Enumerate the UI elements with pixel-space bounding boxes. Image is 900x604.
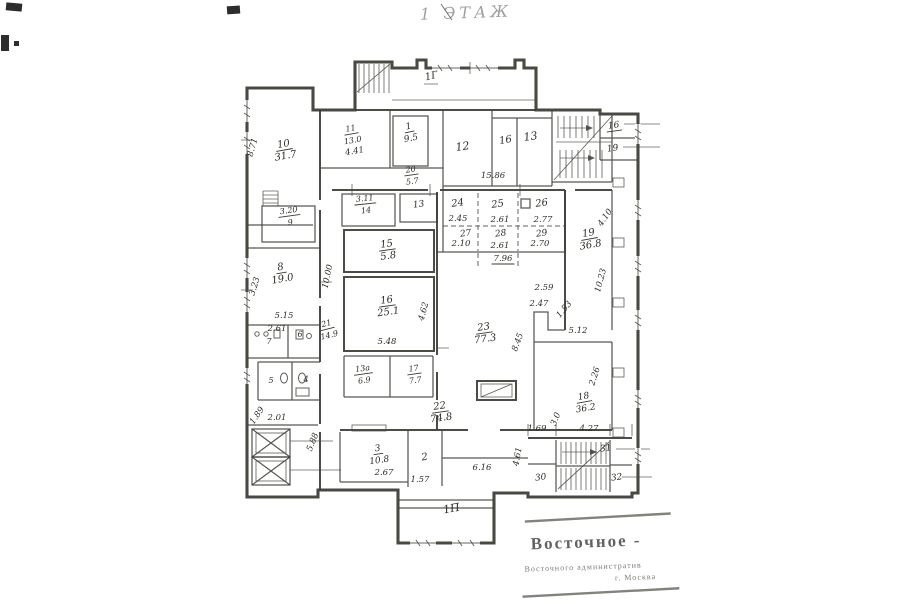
room-label: 1625.1	[374, 294, 400, 320]
label-text: 10.8	[369, 455, 391, 468]
hall-booth	[477, 381, 516, 400]
label-text: 32	[610, 472, 623, 484]
room-number-label: 28	[493, 228, 507, 240]
label-text: 7.96	[494, 254, 514, 264]
label-text: 2.01	[267, 413, 287, 423]
room-label: 3.1114	[353, 193, 377, 216]
dimension-label: 10.23	[593, 267, 609, 293]
dimension-label: 1.89	[248, 405, 267, 427]
dimension-label: 2.61	[490, 215, 510, 225]
label-text: 20	[404, 164, 416, 174]
dimension-label: 3.23	[248, 276, 263, 297]
label-text: 25.1	[376, 305, 401, 319]
label-text: 2.59	[534, 283, 555, 293]
label-text: 26	[534, 197, 550, 210]
dimension-label: 1.57	[411, 475, 431, 485]
stamp-title: Восточное -	[530, 531, 642, 554]
label-text: 31	[599, 443, 612, 454]
dimension-label: 2.59	[534, 283, 555, 293]
label-text: 8.45	[510, 332, 526, 353]
dimension-label: 3.0	[549, 411, 564, 428]
label-text: 12	[455, 139, 471, 154]
label-text: 77.3	[474, 332, 498, 346]
room-number-label: 7	[266, 337, 272, 346]
label-text: 9	[287, 218, 293, 228]
interior-walls-bottom	[340, 425, 528, 508]
label-text: 6.9	[357, 375, 371, 386]
label-text: 2.61	[490, 215, 510, 225]
dimension-label: 2.61	[267, 324, 287, 334]
room-number-label: 6	[297, 330, 302, 339]
room-number-label: 19	[606, 143, 619, 155]
plumbing-fixtures	[255, 330, 312, 396]
dimension-label: 4.27	[579, 424, 600, 434]
label-text: 5.12	[569, 326, 588, 336]
dimension-label: 1.53	[555, 299, 575, 320]
label-text: 10.23	[593, 267, 609, 293]
label-text: 21	[319, 318, 332, 329]
room-label: 310.8	[367, 443, 390, 468]
label-text: 5.48	[378, 337, 398, 347]
label-text: 2.61	[490, 241, 510, 251]
room-number-label: 16	[605, 120, 622, 132]
room-number-label: 24	[450, 197, 465, 210]
label-text: 14	[360, 205, 371, 215]
label-text: 3	[374, 444, 381, 455]
label-text: 2.26	[587, 365, 603, 388]
room-label: 1836.2	[573, 390, 597, 415]
label-text: 1.57	[411, 475, 431, 485]
label-text: 1.53	[555, 299, 575, 320]
room-number-label: 1П	[442, 501, 461, 517]
label-text: 1Г	[424, 70, 439, 84]
room-number-label: 32	[610, 472, 623, 484]
room-label: 2377.3	[472, 321, 497, 347]
room-number-label: 2	[420, 452, 429, 464]
label-text: 2.70	[530, 239, 551, 249]
label-text: 5.15	[275, 311, 294, 321]
room-label: 155.8	[378, 238, 398, 263]
label-text: 1П	[442, 501, 461, 517]
dimension-label: 2.61	[490, 241, 510, 251]
dimension-label: 6.16	[473, 463, 493, 473]
dimension-label: 5.48	[378, 337, 398, 347]
dimension-label: 2.10	[451, 239, 472, 249]
room-number-label: 5	[268, 376, 273, 385]
label-text: 16	[498, 134, 513, 147]
label-text: 2.67	[374, 468, 395, 478]
room-number-label: 12	[455, 139, 471, 154]
label-text: 3.11	[355, 193, 374, 204]
label-text: 30	[534, 472, 547, 484]
dimension-label: 7.96	[492, 254, 515, 264]
label-text: 74.8	[430, 411, 454, 425]
dimension-label: 4.62	[417, 301, 432, 323]
room-label: 13а6.9	[353, 363, 375, 386]
dimension-label: 2.26	[587, 365, 603, 388]
label-text: 8	[276, 262, 284, 274]
label-text: 5.8	[380, 250, 397, 263]
label-text: 19.0	[271, 272, 295, 287]
stamp-city: г. Москва	[615, 572, 656, 582]
label-text: 2.47	[529, 299, 550, 309]
elevator-shafts	[252, 429, 341, 485]
label-text: 4.41	[343, 145, 364, 158]
scanned-floor-plan-page: 1 ЭТАЖ	[0, 0, 900, 604]
room-number-label: 30	[534, 472, 547, 484]
room-label: 1031.7	[272, 137, 299, 164]
room-label: 1113.04.41	[339, 122, 364, 158]
label-text: 3.20	[279, 205, 298, 216]
label-text: 2.61	[267, 324, 287, 334]
room-number-label: 16	[498, 134, 513, 147]
label-text: 6.16	[473, 463, 493, 473]
dimension-label: 5.15	[275, 311, 294, 321]
dimension-label: 15.86	[481, 171, 506, 181]
dimension-label: 2.45	[448, 214, 468, 224]
label-text: 25	[490, 198, 505, 211]
room-label: 819.0	[269, 260, 296, 287]
label-text: 36.2	[575, 402, 597, 415]
room-number-label: 13	[523, 129, 539, 144]
dimension-label: 8.45	[510, 332, 526, 353]
room-number-label: 4	[302, 375, 308, 384]
label-text: 13	[523, 129, 539, 144]
label-text: 4	[302, 375, 308, 384]
label-text: 19	[606, 143, 619, 155]
label-text: 10.00	[321, 263, 336, 289]
label-text: 3.0	[549, 411, 564, 428]
label-text: 7.7	[408, 375, 423, 386]
room-number-label: 31	[599, 443, 612, 454]
room-number-label: 1Г	[424, 70, 439, 84]
label-text: 13а	[355, 363, 371, 374]
label-text: 11	[345, 123, 357, 134]
label-text: 6	[297, 330, 302, 339]
floor-title: 1 ЭТАЖ	[420, 2, 513, 24]
label-text: 5.7	[405, 176, 420, 187]
label-text: 3.23	[248, 276, 263, 297]
label-text: 2.45	[448, 214, 468, 224]
room-label: 19.5	[401, 121, 420, 146]
label-text: 2.77	[533, 215, 554, 225]
dimension-label: 2.70	[530, 239, 551, 249]
room-number-label: 25	[490, 198, 505, 211]
room-number-label: 26	[534, 197, 550, 210]
label-text: 13.0	[343, 134, 362, 146]
label-text: 17	[408, 363, 420, 373]
label-text: 15.86	[481, 171, 506, 181]
dimension-label: 1.69	[528, 424, 548, 434]
dimension-label: 2.01	[267, 413, 287, 423]
registration-stamp: Восточное - Восточного административ г. …	[520, 513, 680, 596]
dimension-label: 2.77	[533, 215, 554, 225]
label-text: 4.27	[579, 424, 600, 434]
floor-plan-drawing: 1 ЭТАЖ	[0, 0, 900, 604]
room-label: 1936.8	[577, 226, 603, 253]
dimension-label: 5.12	[569, 326, 588, 336]
dimension-label: 2.67	[374, 468, 395, 478]
stamp-subtitle: Восточного административ	[524, 561, 641, 574]
label-text: 7	[266, 337, 272, 346]
label-text: 9.5	[403, 132, 419, 145]
label-text: 1.89	[248, 405, 267, 427]
label-text: 1.69	[528, 424, 548, 434]
dimension-label: 4.61	[511, 446, 524, 467]
label-text: 4.62	[417, 301, 432, 323]
label-text: 28	[493, 228, 507, 240]
room-number-label: 13	[412, 199, 425, 211]
dimension-label: 10.00	[321, 263, 336, 289]
room-label: 2274.8	[428, 400, 453, 426]
room-label: 177.7	[406, 363, 423, 386]
label-text: 24	[450, 197, 465, 210]
label-text: 5	[268, 376, 273, 385]
scan-artifacts	[1, 2, 240, 51]
label-text: 2.10	[451, 239, 472, 249]
dimension-label: 2.47	[529, 299, 550, 309]
label-text: 13	[412, 199, 425, 211]
label-text: 1	[405, 122, 413, 133]
label-text: 2	[420, 452, 429, 464]
label-text: 4.61	[511, 446, 524, 467]
stair-top-left	[357, 64, 390, 93]
